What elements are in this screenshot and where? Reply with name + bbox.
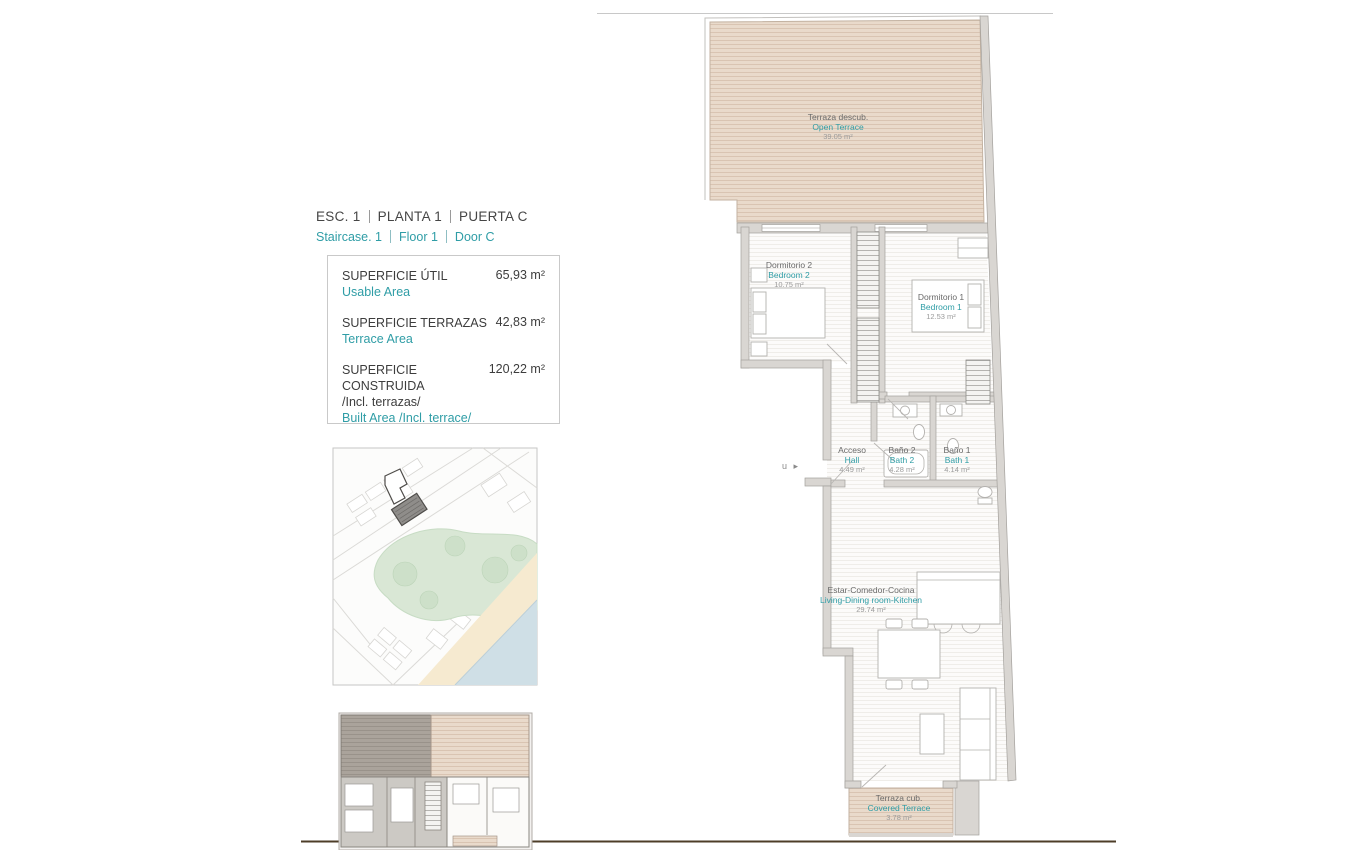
title-door: Door C <box>455 230 495 244</box>
divider <box>446 230 447 243</box>
plan-graphics <box>0 0 1360 850</box>
divider <box>369 210 370 223</box>
title-esc: ESC. 1 <box>316 209 361 224</box>
area-label-es: SUPERFICIE CONSTRUIDA <box>342 362 489 394</box>
title-puerta: PUERTA C <box>459 209 528 224</box>
shaft-icon <box>966 360 990 404</box>
area-value: 42,83 m² <box>496 315 545 329</box>
surface-area-table: SUPERFICIE ÚTIL Usable Area 65,93 m² SUP… <box>327 255 560 424</box>
title-staircase: Staircase. 1 <box>316 230 382 244</box>
keyplan-other-terrace <box>341 715 431 777</box>
title-planta: PLANTA 1 <box>378 209 442 224</box>
area-row-built: SUPERFICIE CONSTRUIDA /Incl. terrazas/ B… <box>342 362 545 426</box>
area-label-en: Built Area /Incl. terrace/ <box>342 410 489 426</box>
area-label-es: SUPERFICIE TERRAZAS <box>342 315 487 331</box>
room-label-hall: Acceso Hall 4.49 m² <box>838 445 866 475</box>
area-label-es-extra: /Incl. terrazas/ <box>342 394 489 410</box>
area-row-terrace: SUPERFICIE TERRAZAS Terrace Area 42,83 m… <box>342 315 545 347</box>
room-label-bath-2: Baño 2 Bath 2 4.28 m² <box>889 445 916 475</box>
location-map <box>333 448 537 685</box>
area-label-es: SUPERFICIE ÚTIL <box>342 268 448 284</box>
area-row-usable: SUPERFICIE ÚTIL Usable Area 65,93 m² <box>342 268 545 300</box>
area-label-en: Terrace Area <box>342 331 487 347</box>
room-label-bedroom-1: Dormitorio 1 Bedroom 1 12.53 m² <box>918 292 964 322</box>
room-label-bedroom-2: Dormitorio 2 Bedroom 2 10.75 m² <box>766 260 812 290</box>
key-plan <box>339 713 532 850</box>
title-floor: Floor 1 <box>399 230 438 244</box>
divider <box>390 230 391 243</box>
kitchen-counter-icon <box>917 572 1000 633</box>
divider <box>450 210 451 223</box>
floor-plan-sheet: ESC. 1PLANTA 1PUERTA C Staircase. 1Floor… <box>0 0 1360 850</box>
room-label-open-terrace: Terraza descub. Open Terrace 39.05 m² <box>808 112 868 142</box>
area-value: 120,22 m² <box>489 362 545 376</box>
area-value: 65,93 m² <box>496 268 545 282</box>
room-label-living-room: Estar-Comedor-Cocina Living-Dining room-… <box>820 585 922 615</box>
room-label-covered-terrace: Terraza cub. Covered Terrace 3.78 m² <box>868 793 931 823</box>
area-label-en: Usable Area <box>342 284 448 300</box>
room-label-bath-1: Baño 1 Bath 1 4.14 m² <box>944 445 971 475</box>
plan-title-en: Staircase. 1Floor 1Door C <box>316 230 495 244</box>
plan-title-es: ESC. 1PLANTA 1PUERTA C <box>316 209 528 224</box>
entrance-arrow-icon: u ▸ <box>782 461 800 472</box>
keyplan-unit-terrace <box>431 715 529 777</box>
